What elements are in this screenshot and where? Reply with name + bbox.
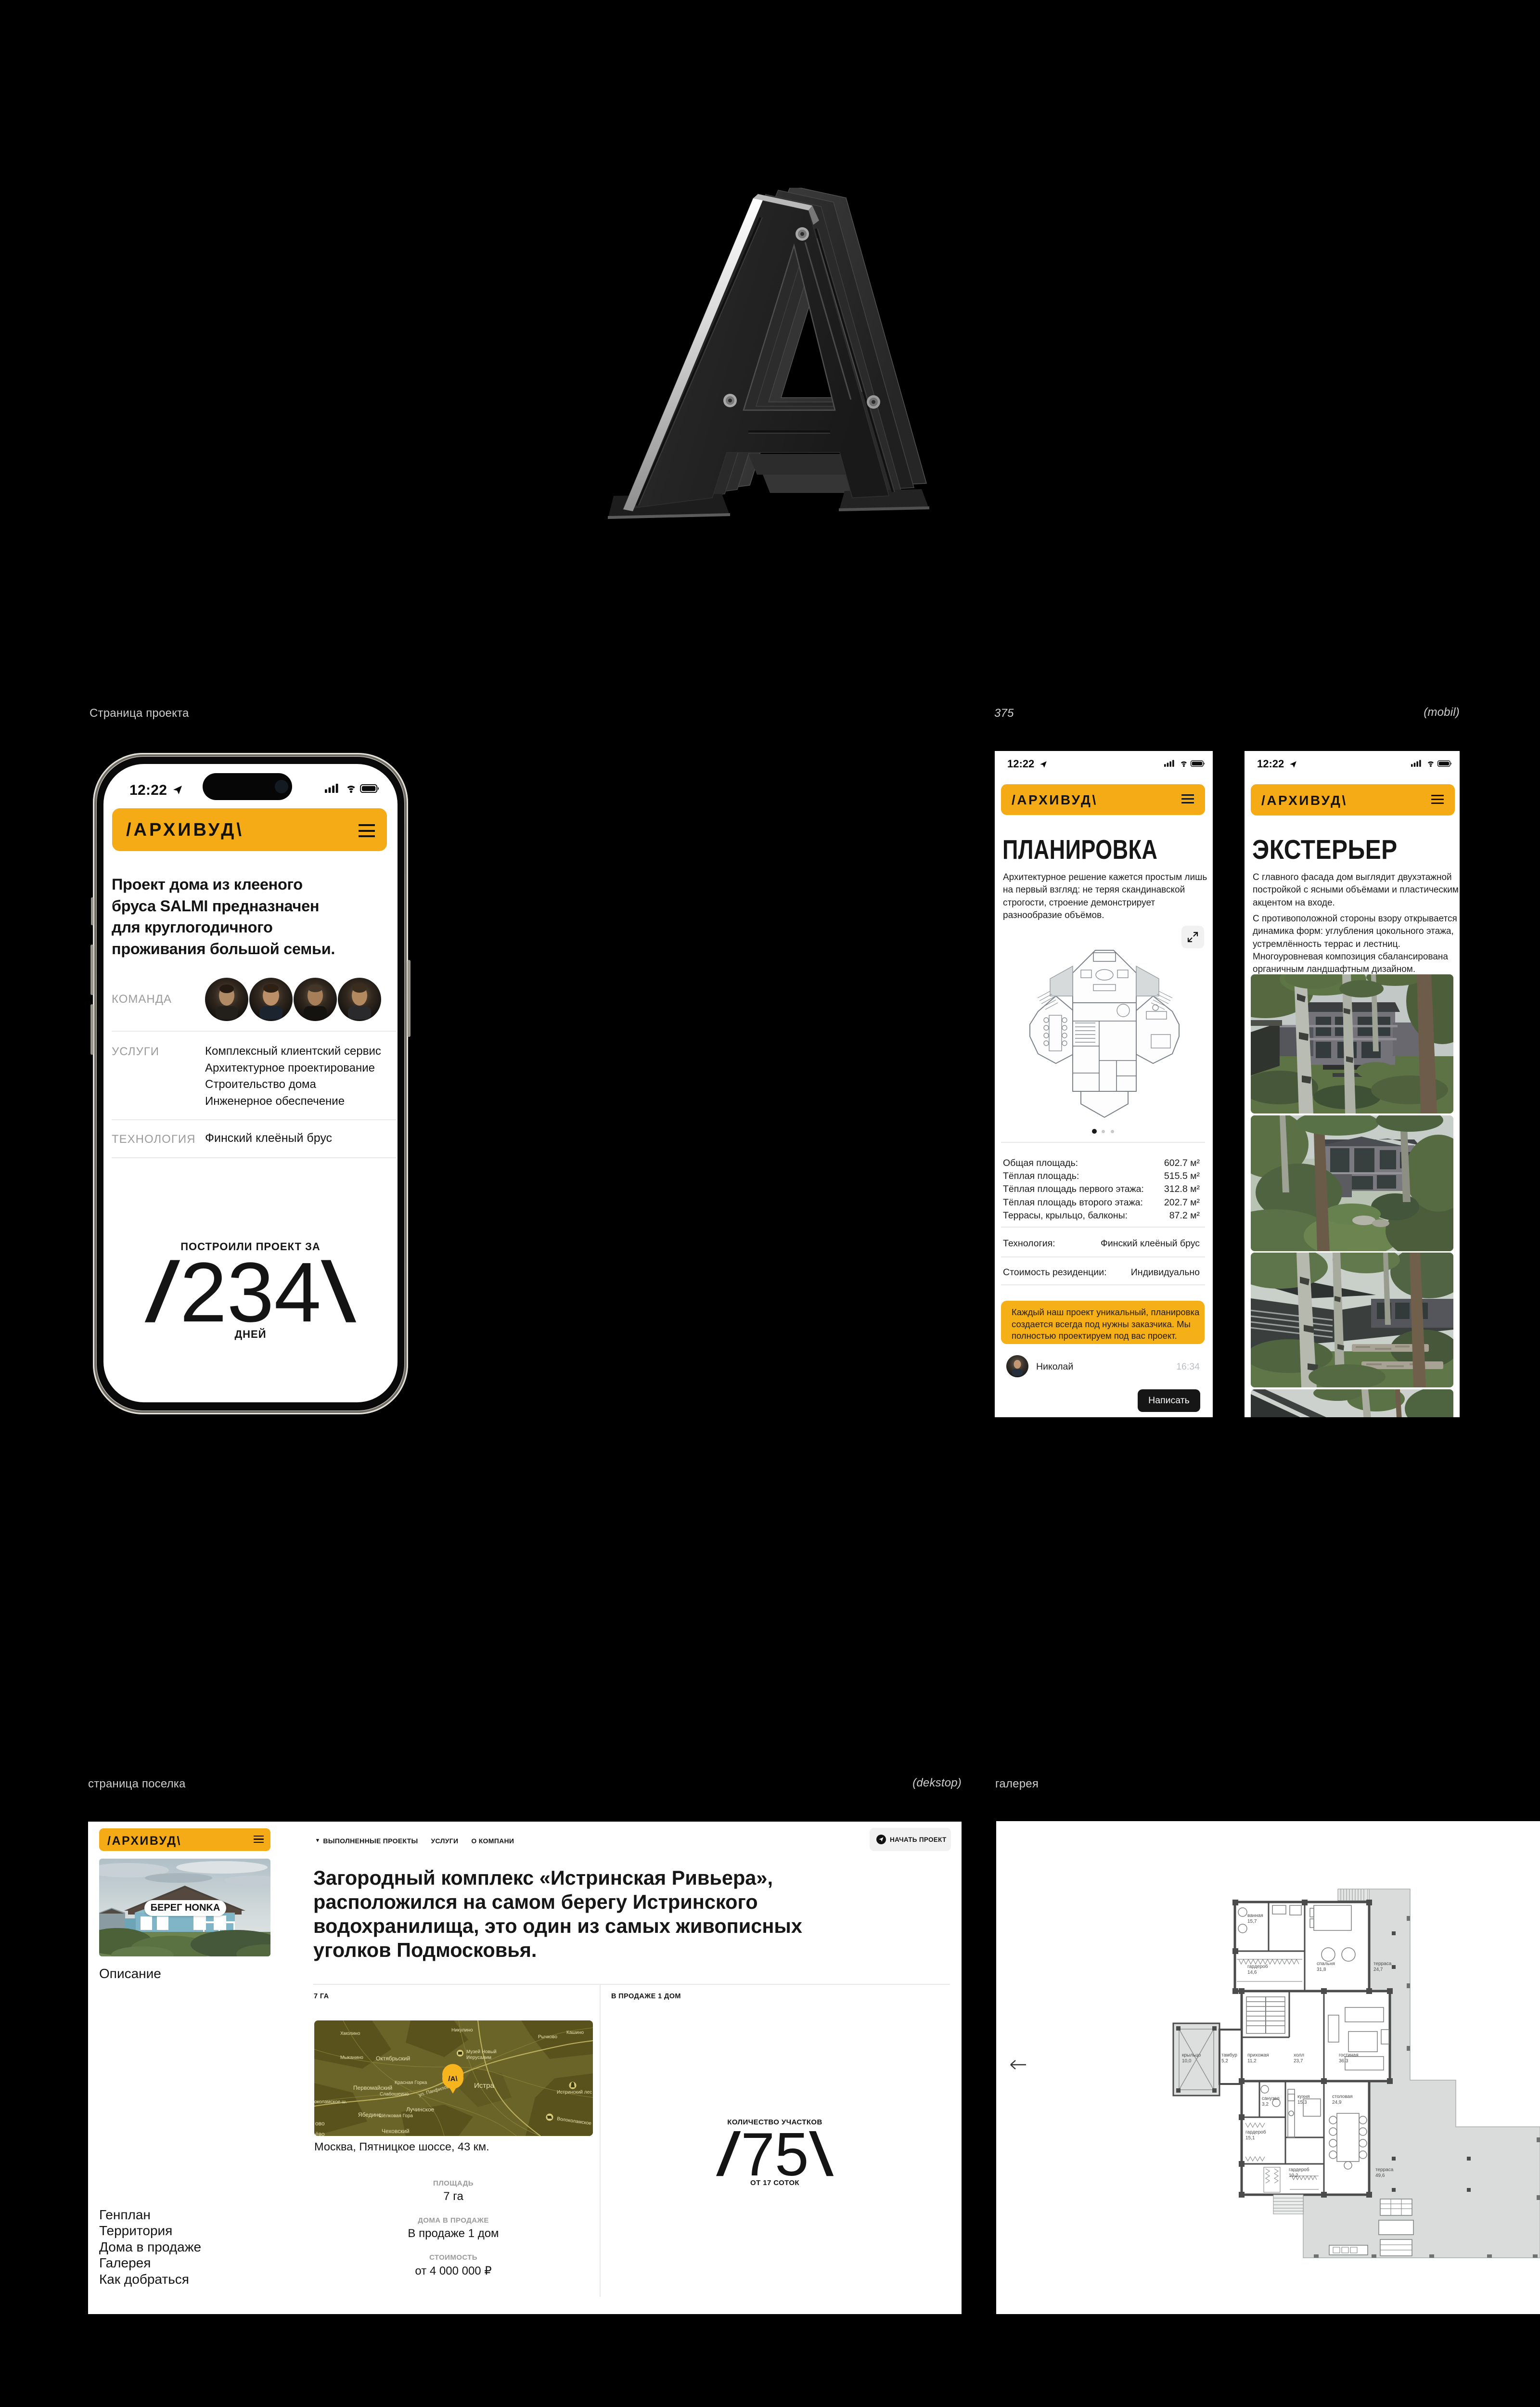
svg-text:Октябрьский: Октябрьский [376,2055,410,2062]
svg-text:36,3: 36,3 [1339,2058,1348,2064]
svg-text:Слабошеино: Слабошеино [380,2091,409,2097]
svg-text:24,9: 24,9 [1332,2100,1342,2105]
svg-text:5,2: 5,2 [1221,2058,1228,2064]
svg-text:23,7: 23,7 [1294,2058,1303,2064]
svg-text:столовая: столовая [1332,2094,1353,2099]
svg-text:14,6: 14,6 [1247,1970,1257,1975]
svg-text:Иерусалим: Иерусалим [466,2055,491,2060]
svg-text:ёво: ёво [315,2131,325,2136]
svg-text:Ябедино: Ябедино [358,2111,382,2118]
svg-text:10,0: 10,0 [1182,2058,1192,2064]
svg-text:терраса: терраса [1375,2167,1394,2173]
svg-text:крыльцо: крыльцо [1182,2053,1201,2058]
svg-text:Лучинское: Лучинское [406,2106,435,2113]
svg-text:Первомайский: Первомайский [353,2084,392,2091]
svg-text:Шёлковая Гора: Шёлковая Гора [379,2113,413,2119]
svg-text:гостиная: гостиная [1339,2053,1359,2058]
svg-text:гардероб: гардероб [1247,1964,1268,1969]
svg-text:15,7: 15,7 [1247,1919,1257,1924]
svg-text:Чеховский: Чеховский [382,2128,410,2135]
svg-text:Рычково: Рычково [538,2034,557,2040]
svg-text:/А\: /А\ [448,2075,458,2083]
svg-text:гардероб: гардероб [1245,2129,1266,2135]
svg-text:Никулино: Никулино [451,2028,473,2033]
svg-text:санузел: санузел [1262,2096,1280,2101]
svg-text:ванная: ванная [1247,1913,1263,1918]
svg-text:15,1: 15,1 [1245,2135,1255,2141]
svg-text:гардероб: гардероб [1289,2167,1309,2173]
svg-text:Хмолино: Хмолино [340,2031,360,2036]
svg-text:24,7: 24,7 [1373,1967,1383,1972]
svg-text:ово: ово [315,2120,325,2127]
svg-text:11,2: 11,2 [1247,2058,1257,2064]
svg-text:3,2: 3,2 [1262,2102,1269,2107]
svg-text:спальня: спальня [1317,1961,1335,1967]
svg-text:тамбур: тамбур [1221,2052,1237,2058]
svg-text:10,2: 10,2 [1289,2173,1298,2178]
svg-text:Музей Новый: Музей Новый [466,2049,497,2055]
svg-text:31,8: 31,8 [1317,1967,1326,1972]
svg-text:Кашино: Кашино [566,2030,584,2035]
svg-text:Красная Горка: Красная Горка [395,2080,427,2085]
svg-text:кухня: кухня [1297,2094,1309,2099]
svg-text:15,3: 15,3 [1297,2100,1307,2105]
svg-text:околамское ш.: околамское ш. [314,2099,347,2105]
svg-text:Мыканино: Мыканино [340,2055,363,2060]
svg-text:терраса: терраса [1373,1961,1392,1967]
svg-text:холл: холл [1294,2053,1304,2058]
svg-text:Истра: Истра [474,2082,494,2090]
svg-text:49,6: 49,6 [1375,2173,1385,2178]
svg-text:Истринский лес: Истринский лес [557,2090,592,2095]
svg-text:прихожая: прихожая [1247,2053,1269,2058]
